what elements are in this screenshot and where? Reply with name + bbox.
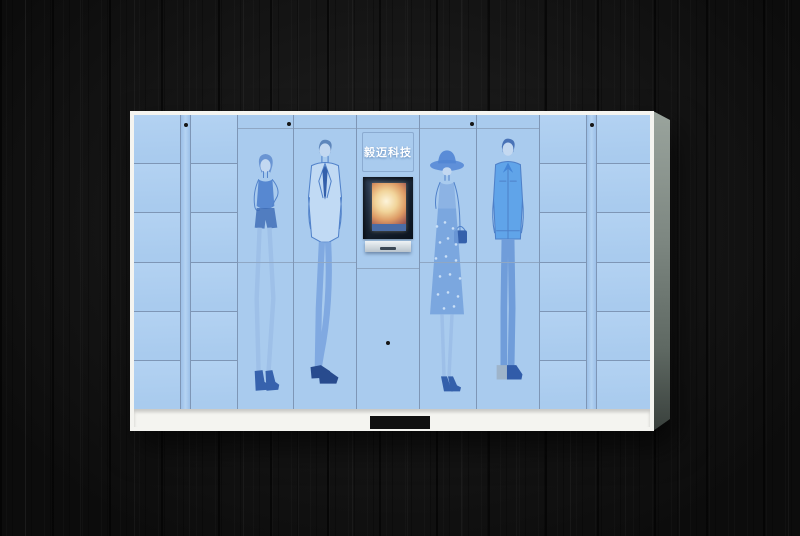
- lock-hole: [470, 122, 474, 126]
- locker-door-small: [191, 312, 237, 361]
- locker-door-tall-man-suit: [294, 115, 357, 409]
- locker-door-small: [134, 115, 180, 164]
- man-denim-jacket-illustration: [477, 133, 539, 406]
- cabinet-side-panel: [653, 111, 670, 431]
- locker-door-small: [191, 263, 237, 312]
- base-notch: [370, 416, 430, 429]
- locker-door-tall-man-denim: [477, 115, 540, 409]
- locker-door-small: [540, 263, 586, 312]
- locker-door-small: [134, 213, 180, 262]
- locker-door-small: [134, 312, 180, 361]
- lock-hole: [184, 123, 188, 127]
- console-lower-door: [357, 268, 419, 409]
- locker-door-small: [191, 115, 237, 164]
- locker-door-small: [597, 213, 650, 262]
- locker-door-small: [597, 164, 650, 213]
- woman-sun-hat-illustration: [420, 133, 476, 406]
- frame-post-left: [180, 115, 191, 409]
- locker-column-small-3: [540, 115, 586, 409]
- locker-door-small: [540, 361, 586, 409]
- brand-label: 毅迈科技: [364, 144, 412, 160]
- locker-door-small: [597, 115, 650, 164]
- smart-parcel-locker: 毅迈科技: [130, 111, 670, 431]
- lock-hole: [590, 123, 594, 127]
- kiosk-screen-module: [363, 177, 413, 255]
- brand-panel: 毅迈科技: [362, 132, 414, 172]
- cabinet-front-face: 毅迈科技: [130, 111, 654, 431]
- keypad-ledge: [365, 241, 411, 252]
- locker-door-small: [597, 361, 650, 409]
- locker-column-small-4: [597, 115, 650, 409]
- locker-door-tall-woman-sun-hat: [420, 115, 477, 409]
- locker-door-small: [597, 312, 650, 361]
- locker-door-tall-woman-tank-top: [237, 115, 294, 409]
- lock-hole: [287, 122, 291, 126]
- locker-door-small: [597, 263, 650, 312]
- locker-door-small: [191, 361, 237, 409]
- kiosk-touchscreen: [372, 183, 406, 231]
- locker-door-small: [540, 213, 586, 262]
- locker-column-small-1: [134, 115, 180, 409]
- control-console-column: 毅迈科技: [357, 115, 420, 409]
- frame-post-right: [586, 115, 597, 409]
- scene: 毅迈科技: [0, 0, 800, 536]
- locker-door-small: [134, 263, 180, 312]
- locker-door-small: [134, 164, 180, 213]
- locker-door-small: [540, 164, 586, 213]
- base-panel: [134, 409, 650, 427]
- locker-door-grid: 毅迈科技: [134, 115, 650, 409]
- lock-hole: [386, 341, 390, 345]
- locker-column-small-2: [191, 115, 237, 409]
- locker-door-small: [540, 115, 586, 164]
- locker-door-small: [540, 312, 586, 361]
- man-suit-illustration: [294, 133, 356, 406]
- locker-door-small: [191, 213, 237, 262]
- kiosk-screen-bezel: [363, 177, 413, 239]
- locker-door-small: [134, 361, 180, 409]
- woman-tank-top-illustration: [238, 133, 293, 406]
- locker-door-small: [191, 164, 237, 213]
